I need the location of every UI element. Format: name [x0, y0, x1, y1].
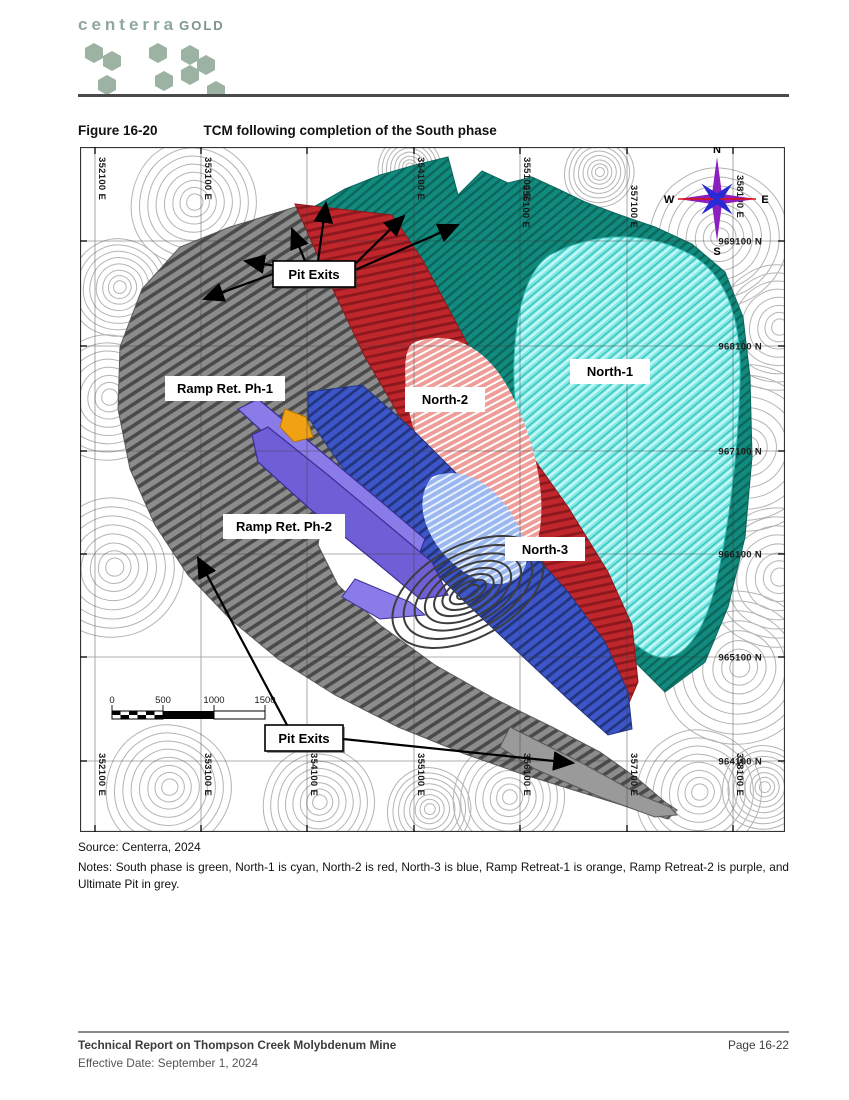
- svg-text:965100 N: 965100 N: [718, 653, 762, 664]
- logo-wordmark: centerraGOLD: [78, 16, 248, 33]
- svg-text:0: 0: [109, 695, 114, 706]
- map-canvas: 352100 E 353100 E 354100 E 355100 E 3561…: [80, 147, 785, 832]
- logo-word-centerra: centerra: [78, 15, 177, 34]
- label-pit-exits-bottom: Pit Exits: [265, 725, 345, 753]
- svg-text:964100 N: 964100 N: [718, 757, 762, 768]
- svg-text:North-2: North-2: [422, 392, 468, 407]
- label-north1: North-1: [570, 359, 650, 384]
- centerra-gold-logo: centerraGOLD: [78, 16, 248, 102]
- logo-word-gold: GOLD: [179, 18, 225, 33]
- svg-text:500: 500: [155, 695, 171, 706]
- footer-page-number: Page 16-22: [728, 1038, 789, 1052]
- svg-text:968100 N: 968100 N: [718, 342, 762, 353]
- svg-text:353100 E: 353100 E: [202, 753, 213, 796]
- svg-text:356100 E: 356100 E: [520, 185, 531, 228]
- page-footer: Technical Report on Thompson Creek Molyb…: [78, 1038, 789, 1052]
- svg-text:354100 E: 354100 E: [415, 157, 426, 200]
- svg-text:357100 E: 357100 E: [628, 185, 639, 228]
- notes-text: Notes: South phase is green, North-1 is …: [78, 859, 789, 892]
- label-pit-exits-top: Pit Exits: [273, 261, 357, 289]
- footer-effective-date: Effective Date: September 1, 2024: [78, 1056, 258, 1070]
- svg-text:966100 N: 966100 N: [718, 550, 762, 561]
- svg-text:352100 E: 352100 E: [96, 753, 107, 796]
- label-north2: North-2: [405, 387, 485, 412]
- svg-text:967100 N: 967100 N: [718, 447, 762, 458]
- svg-text:354100 E: 354100 E: [308, 753, 319, 796]
- svg-text:352100 E: 352100 E: [96, 157, 107, 200]
- svg-text:355100 E: 355100 E: [415, 753, 426, 796]
- label-ramp-ret-ph1: Ramp Ret. Ph-1: [165, 376, 285, 401]
- label-ramp-ret-ph2: Ramp Ret. Ph-2: [223, 514, 345, 539]
- svg-text:N: N: [713, 147, 721, 156]
- figure-caption: Figure 16-20TCM following completion of …: [78, 123, 497, 138]
- logo-hexagons-icon: [78, 37, 248, 97]
- source-line: Source: Centerra, 2024: [78, 840, 201, 854]
- svg-text:North-3: North-3: [522, 542, 568, 557]
- svg-text:357100 E: 357100 E: [628, 753, 639, 796]
- svg-text:North-1: North-1: [587, 364, 633, 379]
- svg-text:Pit Exits: Pit Exits: [278, 731, 329, 746]
- report-page: centerraGOLD Figure 16-20TCM following c…: [0, 0, 849, 1100]
- footer-rule: [78, 1031, 789, 1033]
- svg-text:353100 E: 353100 E: [202, 157, 213, 200]
- svg-text:S: S: [713, 246, 720, 258]
- svg-text:Pit Exits: Pit Exits: [288, 267, 339, 282]
- header-rule: [78, 94, 789, 97]
- figure-title-text: TCM following completion of the South ph…: [204, 123, 497, 138]
- mine-map-figure: 352100 E 353100 E 354100 E 355100 E 3561…: [80, 147, 785, 832]
- footer-report-title: Technical Report on Thompson Creek Molyb…: [78, 1038, 396, 1052]
- svg-text:W: W: [664, 194, 675, 206]
- svg-text:Ramp Ret. Ph-1: Ramp Ret. Ph-1: [177, 381, 273, 396]
- svg-text:Ramp Ret. Ph-2: Ramp Ret. Ph-2: [236, 519, 332, 534]
- label-north3: North-3: [505, 537, 585, 561]
- figure-label: Figure 16-20: [78, 123, 158, 138]
- svg-text:1000: 1000: [203, 695, 224, 706]
- svg-text:969100 N: 969100 N: [718, 237, 762, 248]
- svg-text:E: E: [761, 194, 768, 206]
